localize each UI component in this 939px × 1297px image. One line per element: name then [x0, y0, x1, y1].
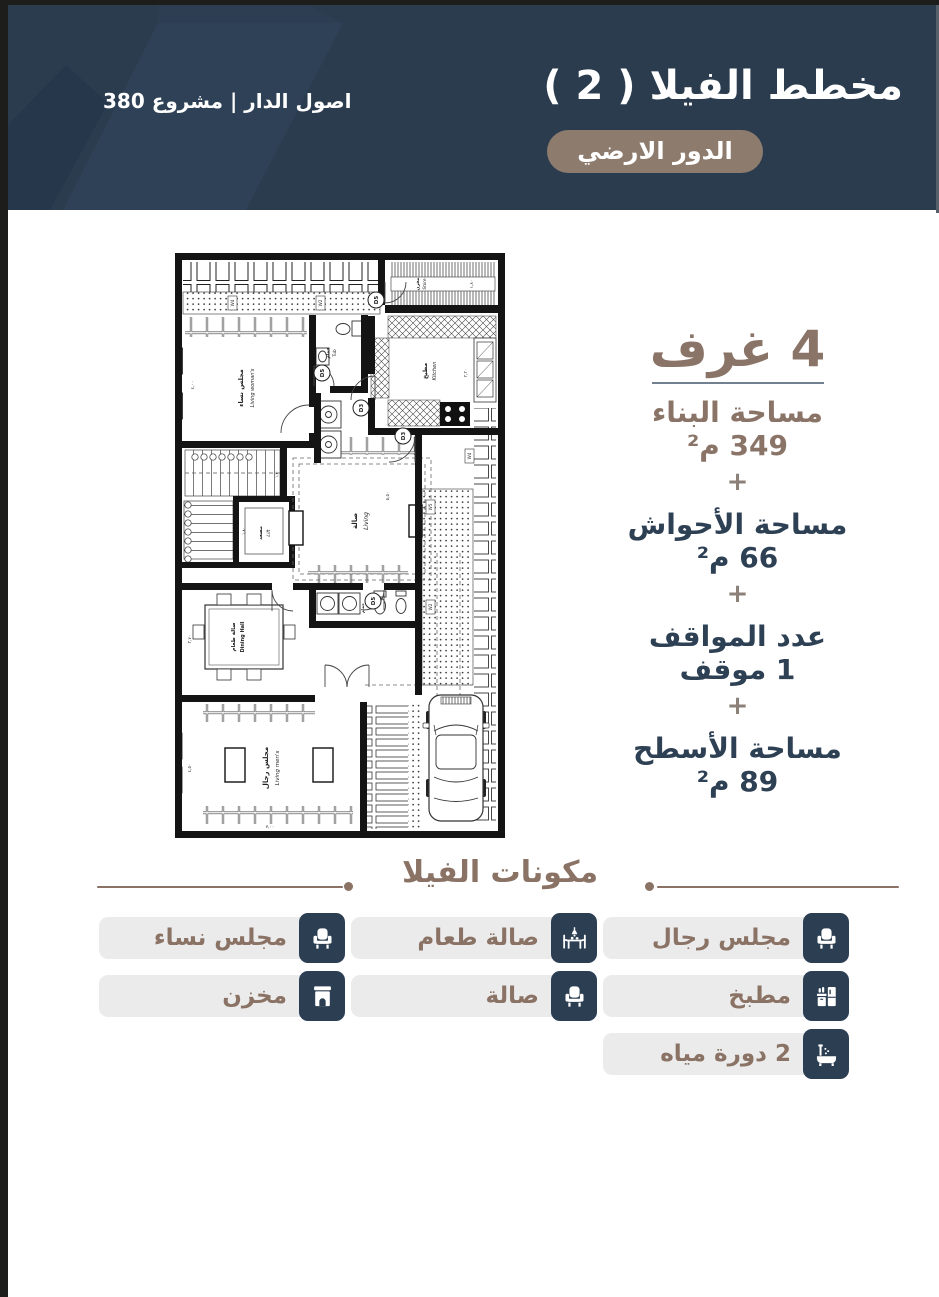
decorative-dot-left	[344, 882, 353, 891]
stat-parking-count: عدد المواقف 1 موقف	[540, 620, 935, 686]
floor-plan: D5 D5 D3 D3 D5 W4 W2 W5 W2 W4 مجلس نساء …	[175, 253, 505, 838]
icon-tile	[299, 971, 345, 1021]
component-item-bathrooms: 2 دورة مياه	[603, 1033, 849, 1075]
garage-shutter	[367, 705, 408, 829]
storage-icon	[309, 983, 336, 1010]
room-label-tub1-ar: حمام	[326, 347, 331, 358]
icon-tile	[551, 971, 597, 1021]
page-title: مخطط الفيلا ( 2 )	[343, 63, 903, 109]
bath-icon	[813, 1041, 840, 1068]
door-tag-d3: D3	[359, 404, 365, 413]
stat-label: مساحة البناء	[540, 396, 935, 430]
rooms-underline	[652, 382, 824, 384]
door-tag-d5: D5	[320, 369, 326, 378]
stat-label: مساحة الأسطح	[540, 732, 935, 766]
door-tag-d5: D5	[371, 597, 377, 606]
room-label-kitchen-en: Kitchen	[432, 362, 438, 381]
room-label-living-womans-ar: مجلس نساء	[237, 369, 245, 407]
room-label-tub1-en: Tub	[332, 349, 337, 357]
component-label: 2 دورة مياه	[613, 1033, 791, 1075]
component-item-dining-hall: صالة طعام	[351, 917, 597, 959]
dim-mens-length: ٧,٠٠	[266, 825, 275, 830]
kitchen-icon	[813, 983, 840, 1010]
icon-tile	[803, 913, 849, 963]
header-band: اصول الدار | مشروع 380 مخطط الفيلا ( 2 )…	[8, 5, 936, 210]
floor-plan-drawing: D5 D5 D3 D3 D5 W4 W2 W5 W2 W4 مجلس نساء …	[175, 253, 505, 838]
gravel-strip	[408, 702, 422, 829]
stat-value: 1 موقف	[540, 654, 935, 686]
plus-separator: +	[540, 580, 935, 608]
dim-living: ٥,٥٠	[386, 492, 391, 501]
component-label: صالة	[361, 975, 539, 1017]
decorative-line-right	[657, 886, 899, 888]
dim-stairs: ١,٣٠	[274, 470, 279, 478]
seating-band-mens-bottom	[203, 806, 353, 824]
stat-label: عدد المواقف	[540, 620, 935, 654]
window-tag-w2: W2	[428, 603, 433, 610]
room-label-store-en: Store	[422, 278, 427, 290]
component-label: مجلس نساء	[109, 917, 287, 959]
room-label-living-mens-en: Living men's	[275, 751, 281, 786]
icon-tile	[803, 1029, 849, 1079]
decorative-line-left	[97, 886, 343, 888]
room-label-dining-en: Dining Hall	[240, 621, 246, 652]
stats-panel: 4 غرف مساحة البناء 349 م² + مساحة الأحوا…	[540, 320, 935, 798]
dim-store: ١,٨٠	[470, 280, 475, 289]
component-item-kitchen: مطبخ	[603, 975, 849, 1017]
dim-living-womans: ٤,٠٠	[191, 381, 196, 390]
brand-name: اصول الدار | مشروع 380	[103, 89, 363, 113]
stat-building-area: مساحة البناء 349 م²	[540, 396, 935, 462]
pergola-band	[183, 262, 380, 314]
window-tag-w4: W4	[230, 299, 235, 306]
window-tag-w5: W5	[428, 503, 433, 510]
closet-band-womens	[185, 317, 307, 337]
plus-separator: +	[540, 692, 935, 720]
floor-badge: الدور الارضي	[547, 130, 763, 173]
room-label-lift-en: Lift	[266, 529, 272, 536]
room-label-lift-ar: مصعد	[258, 526, 264, 540]
component-item-hall: صالة	[351, 975, 597, 1017]
room-label-kitchen-ar: مطبخ	[422, 363, 429, 380]
armchair-icon	[561, 983, 588, 1010]
component-label: مطبخ	[613, 975, 791, 1017]
component-item-mens-majlis: مجلس رجال	[603, 917, 849, 959]
stat-courtyard-area: مساحة الأحواش 66 م²	[540, 508, 935, 574]
window-tag-w4: W4	[467, 452, 472, 459]
icon-tile	[803, 971, 849, 1021]
brochure-page: اصول الدار | مشروع 380 مخطط الفيلا ( 2 )…	[0, 0, 939, 1297]
stat-value: 66 م²	[540, 542, 935, 574]
stat-roof-area: مساحة الأسطح 89 م²	[540, 732, 935, 798]
stat-value: 89 م²	[540, 766, 935, 798]
seating-band-mens-top	[203, 704, 315, 722]
component-item-womens-majlis: مجلس نساء	[99, 917, 345, 959]
component-label: صالة طعام	[361, 917, 539, 959]
decorative-dot-right	[645, 882, 654, 891]
window-tag-w2: W2	[318, 299, 323, 306]
room-label-store-ar: مخزن	[416, 277, 421, 290]
room-label-living-en: Living	[363, 512, 370, 530]
stat-value: 349 م²	[540, 430, 935, 462]
page-frame-left	[0, 0, 8, 1297]
armchair-icon	[813, 925, 840, 952]
rooms-count: 4 غرف	[540, 320, 935, 378]
stat-label: مساحة الأحواش	[540, 508, 935, 542]
store-hatch	[391, 262, 495, 305]
door-tag-d5: D5	[374, 296, 380, 305]
room-label-living-mens-ar: مجلس رجال	[262, 747, 270, 789]
room-label-dining-ar: صالة طعام	[231, 622, 237, 651]
component-label: مخزن	[109, 975, 287, 1017]
component-label: مجلس رجال	[613, 917, 791, 959]
dim-dining: ٣,٧٠	[187, 635, 193, 644]
armchair-icon	[309, 925, 336, 952]
dim-lift: ١,٨٠	[241, 527, 246, 535]
driveway	[422, 489, 473, 685]
dining-table-icon	[561, 925, 588, 952]
dim-mens-width: ٤,٥٠	[188, 764, 193, 773]
room-label-tub2-ar: حمام	[360, 603, 365, 613]
icon-tile	[551, 913, 597, 963]
component-item-storage: مخزن	[99, 975, 345, 1017]
page-frame-top	[0, 0, 939, 5]
plus-separator: +	[540, 468, 935, 496]
car-top-view	[423, 695, 489, 821]
dim-kitchen: ٣,٣٠	[463, 369, 469, 378]
room-label-living-ar: صالة	[351, 513, 359, 530]
door-tag-d3: D3	[401, 432, 407, 441]
room-label-living-womans-en: Living woman's	[250, 368, 256, 407]
icon-tile	[299, 913, 345, 963]
components-title: مكونات الفيلا	[395, 855, 605, 890]
